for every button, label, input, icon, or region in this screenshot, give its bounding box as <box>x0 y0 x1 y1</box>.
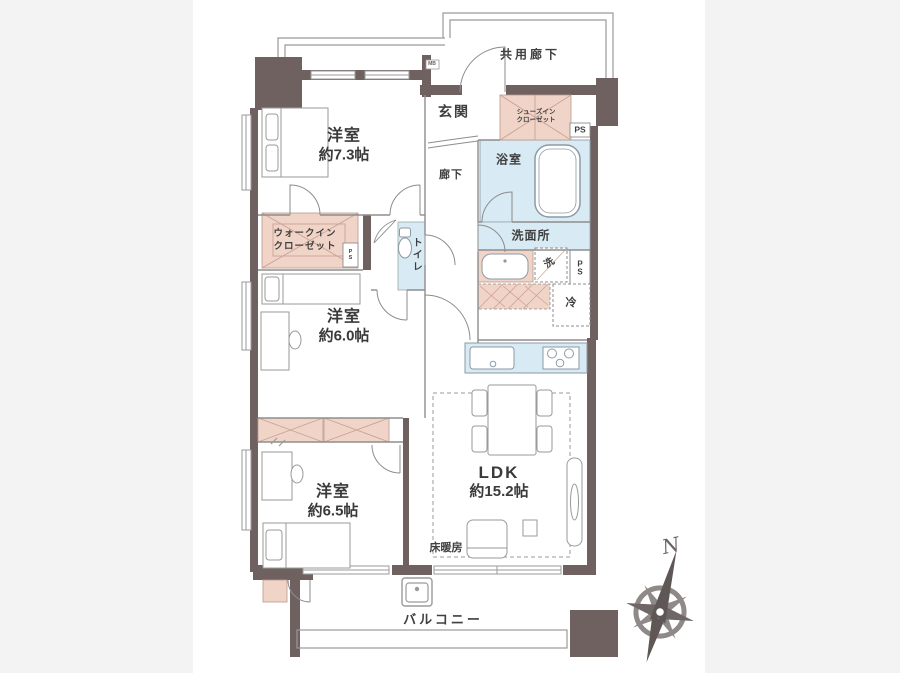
front-door-arc <box>460 47 505 92</box>
screenshot: 共用廊下 玄関 シューズイン クローゼット PS MB 浴室 廊下 洗面所 洗 … <box>0 0 900 673</box>
hallway-label: 廊下 <box>439 169 463 183</box>
ldk-door-arc <box>425 295 470 340</box>
balcony-rail <box>297 630 567 648</box>
fridge-label: 冷 <box>566 297 577 311</box>
side-table-icon <box>523 520 537 536</box>
floorplan-image: 共用廊下 玄関 シューズイン クローゼット PS MB 浴室 廊下 洗面所 洗 … <box>193 0 705 673</box>
toilet-label: トイレ <box>409 237 422 273</box>
dining-table-icon <box>472 385 552 455</box>
chair-icon <box>472 426 487 452</box>
floorplan-drawing <box>193 0 705 673</box>
chair-icon <box>537 390 552 416</box>
ps-wic-label: P S <box>349 249 353 261</box>
ldk-label: LDK 約15.2帖 <box>469 462 528 502</box>
entrance-label: 玄関 <box>438 103 470 121</box>
desk-icon <box>261 312 301 370</box>
washroom-label: 洗面所 <box>511 229 550 244</box>
bedroom-6-0-label: 洋室 約6.0帖 <box>319 308 370 347</box>
common-corridor-label: 共用廊下 <box>500 48 560 63</box>
bed-icon <box>262 274 360 304</box>
bedroom-7-3-label: 洋室 約7.3帖 <box>319 127 370 166</box>
chair-icon <box>537 426 552 452</box>
shoes-closet-label: シューズイン クローゼット <box>517 109 556 126</box>
bedroom2-door-arc <box>377 290 407 320</box>
balcony-label: バルコニー <box>403 612 483 628</box>
sofa-icon <box>467 520 507 558</box>
meter-box-label: MB <box>428 61 436 67</box>
ps-mid-label: P S <box>577 261 582 278</box>
kitchen <box>465 343 587 373</box>
toilet-door-arc <box>425 235 455 265</box>
washbasin-icon <box>482 254 528 279</box>
tv-board-icon <box>567 458 582 546</box>
slop-sink-icon <box>402 578 432 606</box>
bedroom-6-5-label: 洋室 約6.5帖 <box>308 483 359 522</box>
bed-icon <box>263 523 350 568</box>
kitchen-sink-icon <box>470 347 514 369</box>
bathroom-label: 浴室 <box>496 153 522 168</box>
chair-icon <box>472 390 487 416</box>
walk-in-closet-label: ウォークイン クローゼット <box>273 228 336 254</box>
balcony-storage <box>263 580 287 602</box>
desk-icon <box>262 438 303 500</box>
floor-heating-label: 床暖房 <box>430 542 463 556</box>
bathtub-icon <box>535 145 580 217</box>
compass-rose-icon <box>604 539 705 673</box>
cabinet-hatched <box>478 284 550 309</box>
bedroom3-door-arc <box>372 445 400 473</box>
corridor-outline <box>278 13 613 78</box>
ps-top-label: PS <box>574 125 585 136</box>
